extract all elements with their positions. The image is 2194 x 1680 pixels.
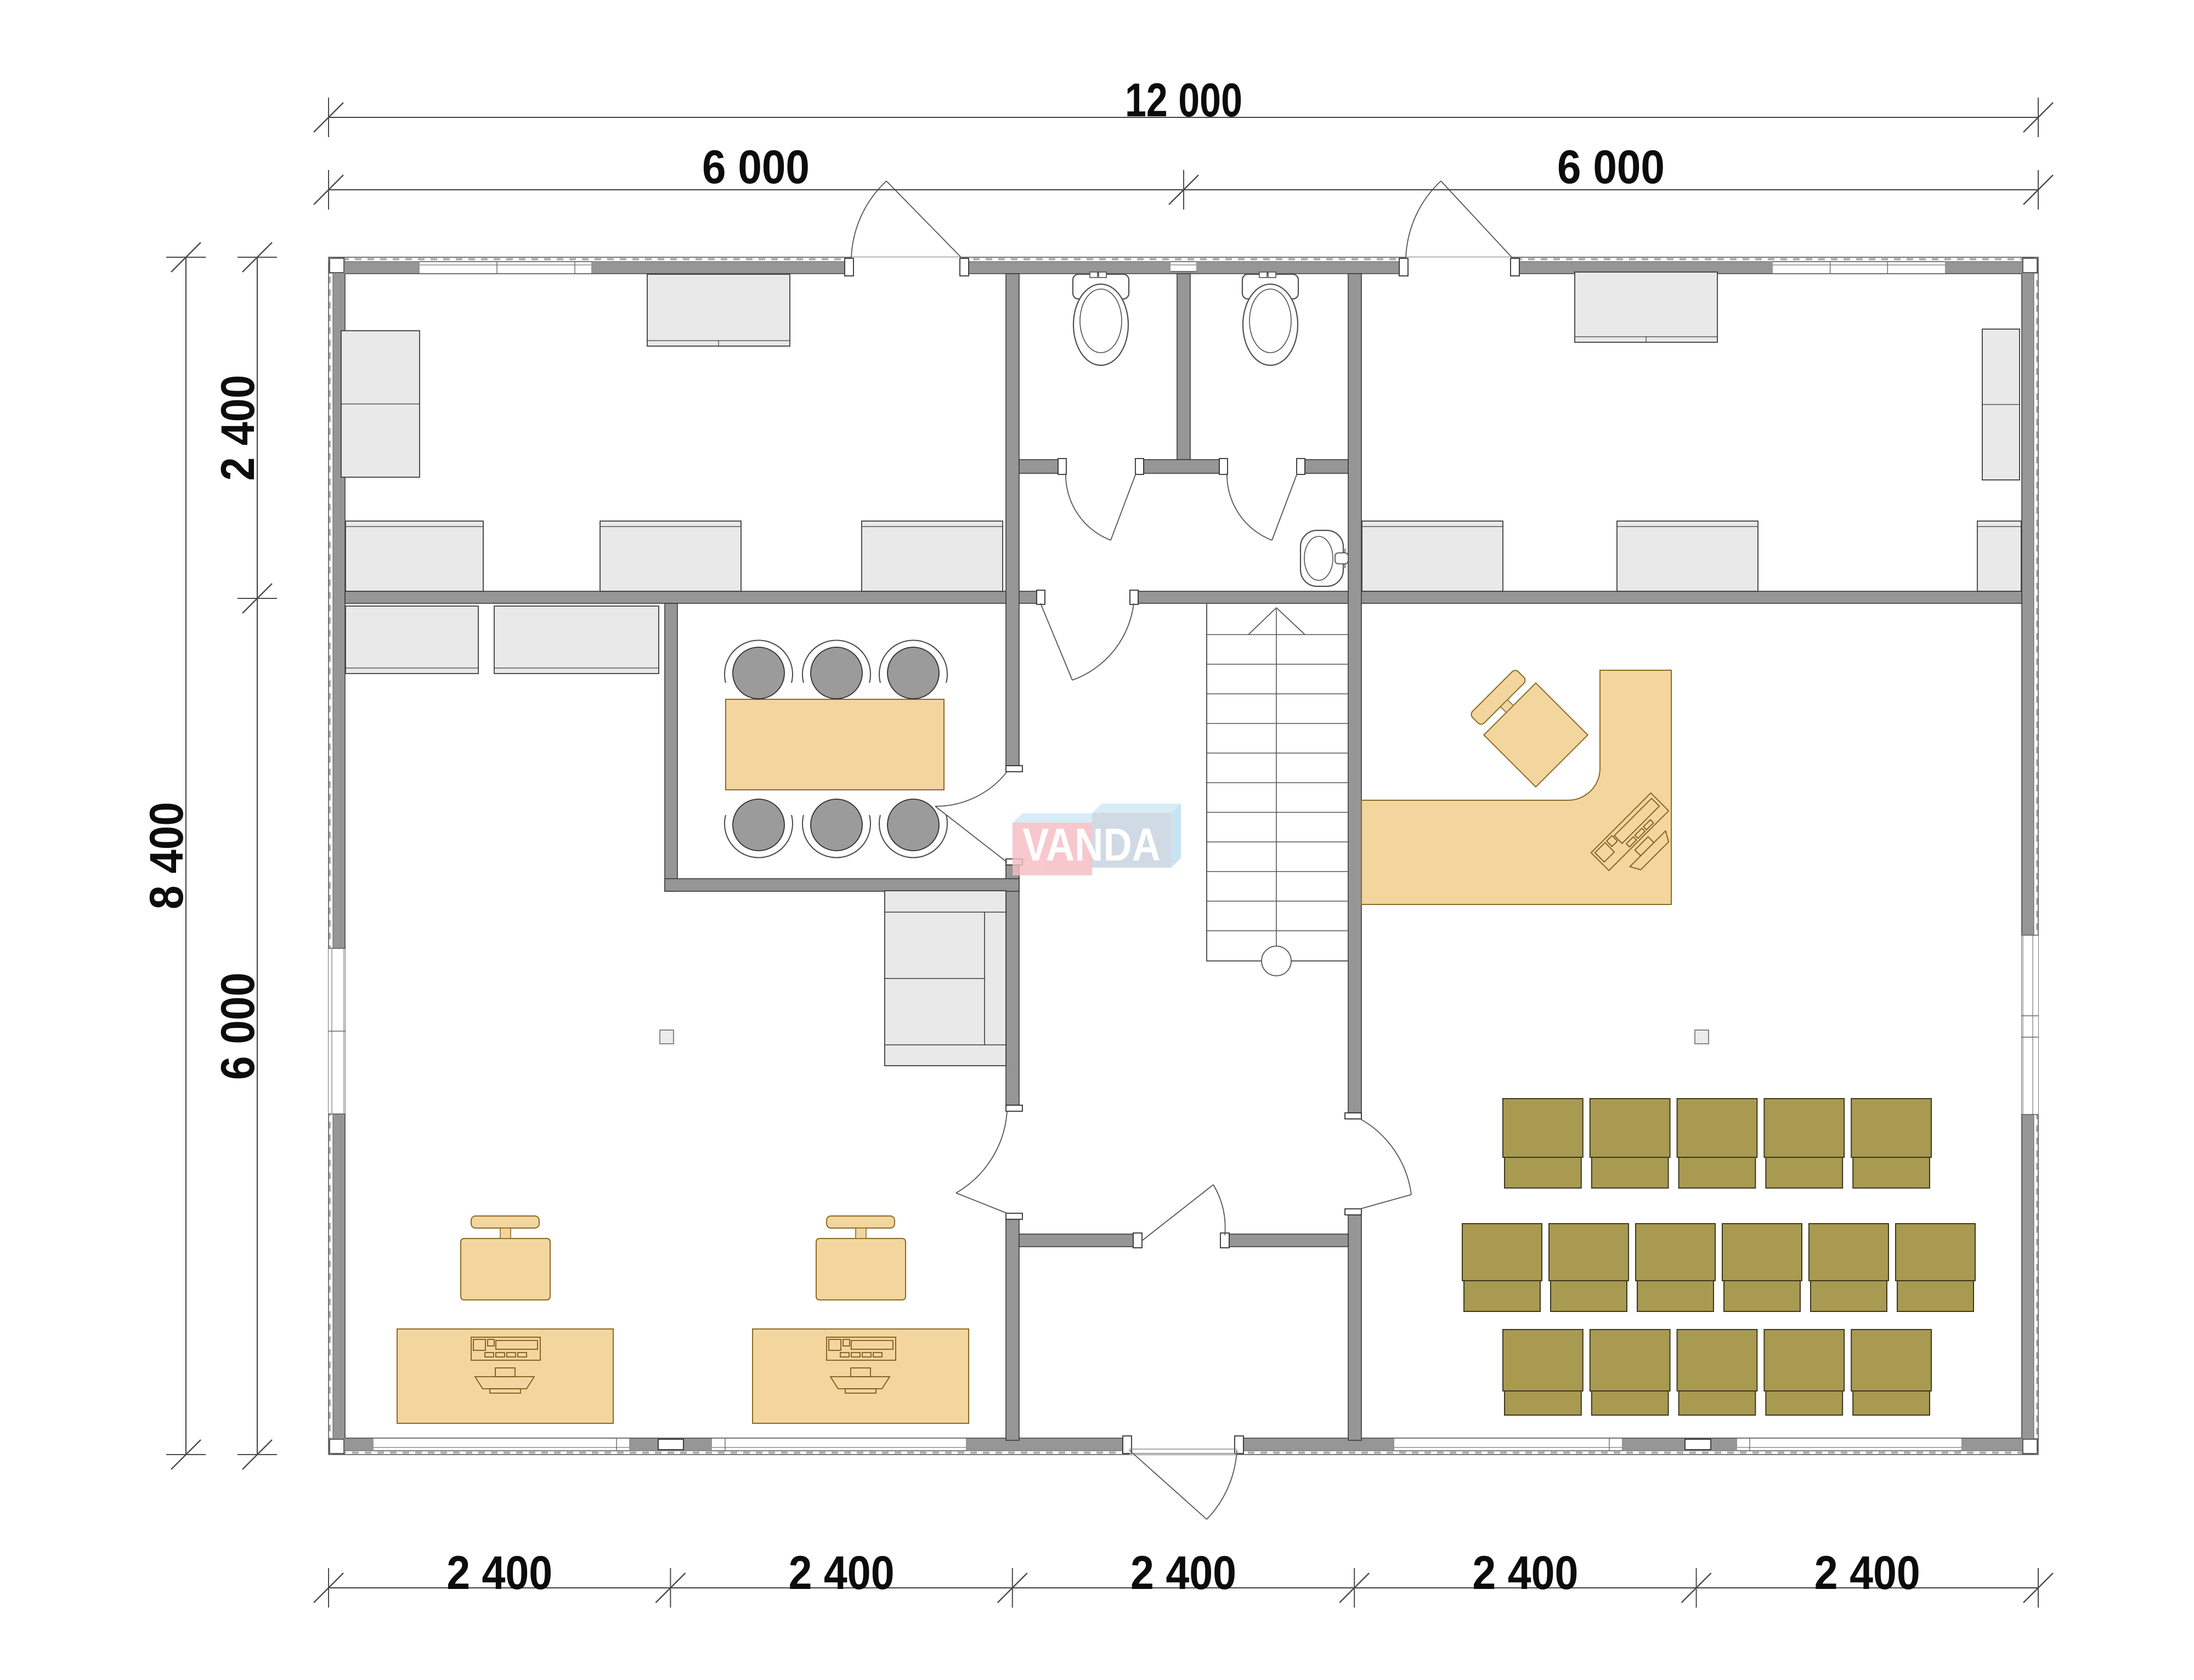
svg-text:6 000: 6 000 [1557, 141, 1665, 194]
svg-text:2 400: 2 400 [1472, 1547, 1578, 1599]
svg-text:6 000: 6 000 [212, 972, 264, 1080]
svg-text:2 400: 2 400 [212, 375, 264, 481]
svg-text:8 400: 8 400 [140, 802, 193, 909]
svg-text:6 000: 6 000 [702, 141, 810, 194]
svg-text:2 400: 2 400 [789, 1547, 895, 1599]
svg-text:12 000: 12 000 [1125, 74, 1242, 127]
svg-text:VANDA: VANDA [1022, 819, 1161, 870]
svg-text:2 400: 2 400 [1814, 1547, 1920, 1599]
svg-text:2 400: 2 400 [446, 1547, 552, 1599]
svg-text:2 400: 2 400 [1130, 1547, 1236, 1599]
